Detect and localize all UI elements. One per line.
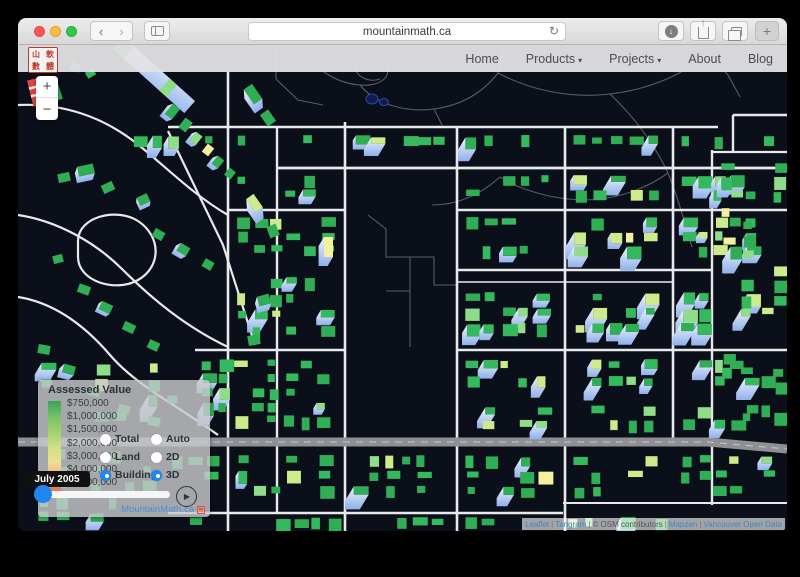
sidebar-toggle-button[interactable] [144, 21, 170, 41]
desktop-background: ‹ › mountainmath.ca ↻ ↓ + [0, 0, 800, 577]
sidebar-icon [151, 26, 164, 36]
reload-icon[interactable]: ↻ [549, 24, 559, 38]
mountainmath-mini-logo-icon [197, 506, 205, 514]
mountainmath-link[interactable]: MountainMath.ca [121, 504, 205, 515]
site-header: 山 軟 數 體 HomeProducts▾Projects▾AboutBlog [18, 45, 787, 72]
timeline-tooltip: July 2005 [24, 471, 90, 487]
page-content: 山 軟 數 體 HomeProducts▾Projects▾AboutBlog … [18, 45, 787, 531]
radio-icon[interactable] [151, 434, 162, 445]
nav-item-about[interactable]: About [688, 52, 721, 66]
logo-char: 山 [29, 48, 43, 60]
attribution-link[interactable]: Mapzen [669, 520, 697, 529]
radio-icon[interactable] [151, 470, 162, 481]
radio-value-building[interactable]: Building [100, 469, 157, 481]
attribution-separator: | [665, 520, 667, 529]
main-nav: HomeProducts▾Projects▾AboutBlog [465, 45, 773, 72]
tab-overview-button[interactable] [722, 21, 748, 41]
download-icon: ↓ [665, 25, 678, 38]
legend-value-label: $1,000,000 [67, 410, 117, 423]
attribution-separator: | [699, 520, 701, 529]
share-icon [698, 27, 709, 39]
attribution-link[interactable]: Vancouver Open Data [703, 520, 782, 529]
radio-value-land[interactable]: Land [100, 451, 157, 463]
browser-window: ‹ › mountainmath.ca ↻ ↓ + [18, 18, 787, 531]
zoom-in-button[interactable]: + [36, 76, 58, 98]
attribution-link[interactable]: Tangram [555, 520, 586, 529]
radio-label: Auto [166, 433, 190, 445]
tabs-icon [731, 27, 742, 36]
radio-label: Total [115, 433, 139, 445]
map-zoom-control: + − [36, 76, 58, 120]
chevron-down-icon: ▾ [657, 56, 661, 65]
timeline-slider-track[interactable] [43, 491, 170, 498]
radio-view-2d[interactable]: 2D [151, 451, 190, 463]
downloads-button[interactable]: ↓ [658, 21, 684, 41]
back-button[interactable]: ‹ [90, 21, 112, 41]
zoom-out-button[interactable]: − [36, 98, 58, 120]
nav-item-home[interactable]: Home [465, 52, 498, 66]
legend-panel: Assessed Value $750,000$1,000,000$1,500,… [38, 380, 210, 517]
minimize-window-button[interactable] [50, 26, 61, 37]
chevron-down-icon: ▾ [578, 56, 582, 65]
close-window-button[interactable] [34, 26, 45, 37]
attribution-separator: | [551, 520, 553, 529]
legend-title: Assessed Value [48, 384, 131, 396]
radio-label: 3D [166, 469, 179, 481]
value-type-options: TotalLandBuilding [100, 433, 157, 481]
radio-icon[interactable] [100, 470, 111, 481]
play-icon: ▶ [184, 492, 190, 501]
url-text: mountainmath.ca [363, 26, 451, 38]
logo-char: 軟 [43, 48, 57, 60]
mountainmath-logo[interactable]: 山 軟 數 體 [28, 47, 58, 73]
nav-item-blog[interactable]: Blog [748, 52, 773, 66]
timeline-slider-handle[interactable] [34, 485, 52, 503]
address-bar[interactable]: mountainmath.ca ↻ [248, 22, 566, 41]
attribution-separator: | [588, 520, 590, 529]
fullscreen-window-button[interactable] [66, 26, 77, 37]
radio-icon[interactable] [151, 452, 162, 463]
attribution-link[interactable]: Leaflet [525, 520, 549, 529]
new-tab-button[interactable]: + [755, 21, 779, 41]
radio-view-auto[interactable]: Auto [151, 433, 190, 445]
browser-toolbar: ‹ › mountainmath.ca ↻ ↓ + [18, 18, 787, 45]
radio-label: Land [115, 451, 140, 463]
radio-icon[interactable] [100, 434, 111, 445]
view-mode-options: Auto2D3D [151, 433, 190, 481]
share-button[interactable] [690, 21, 716, 41]
nav-item-projects[interactable]: Projects▾ [609, 52, 661, 66]
forward-button[interactable]: › [111, 21, 133, 41]
radio-label: 2D [166, 451, 179, 463]
legend-value-label: $750,000 [67, 397, 117, 410]
logo-char: 體 [43, 60, 57, 72]
radio-icon[interactable] [100, 452, 111, 463]
map-attribution: Leaflet|Tangram|© OSM contributors|Mapze… [522, 518, 785, 530]
radio-view-3d[interactable]: 3D [151, 469, 190, 481]
mountainmath-link-label: MountainMath.ca [121, 504, 194, 515]
radio-value-total[interactable]: Total [100, 433, 157, 445]
nav-item-products[interactable]: Products▾ [526, 52, 582, 66]
attribution-text: © OSM contributors [592, 520, 662, 529]
logo-char: 數 [29, 60, 43, 72]
